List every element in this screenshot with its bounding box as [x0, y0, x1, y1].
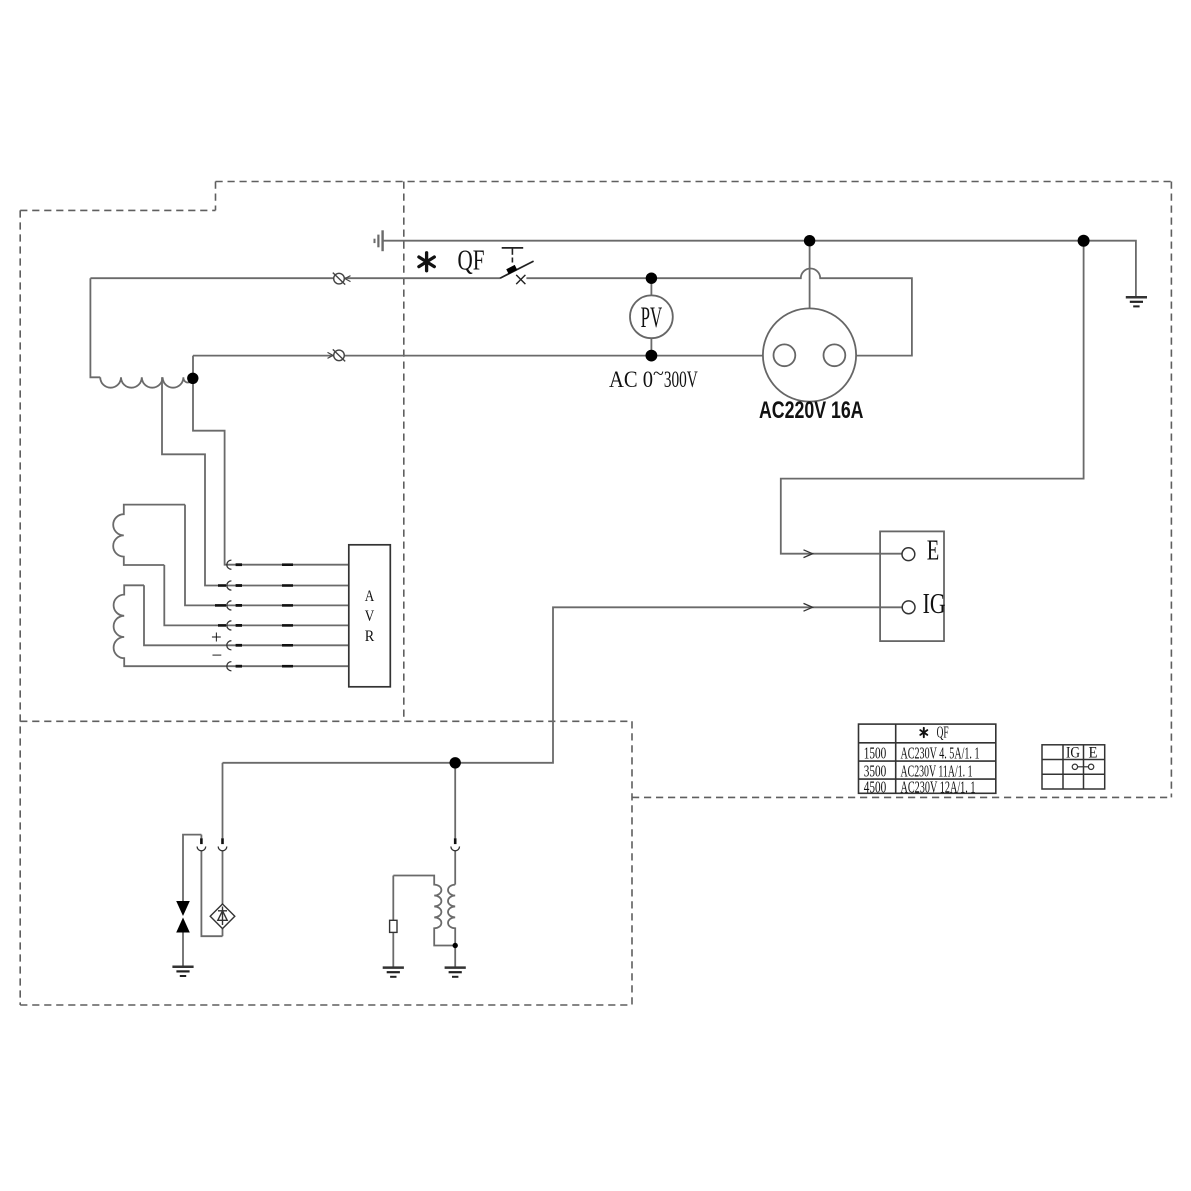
svg-text:AC230V 12A/1. 1: AC230V 12A/1. 1: [901, 778, 976, 797]
svg-text:AC220V 16A: AC220V 16A: [759, 397, 864, 424]
svg-text:−: −: [212, 646, 223, 667]
svg-text:QF: QF: [937, 723, 949, 742]
svg-text:E: E: [1089, 745, 1098, 762]
svg-text:1500: 1500: [864, 744, 887, 763]
svg-text:IG: IG: [1066, 745, 1080, 762]
svg-text:AC230V 4. 5A/1. 1: AC230V 4. 5A/1. 1: [901, 744, 980, 763]
svg-text:R: R: [365, 628, 375, 645]
svg-text:4500: 4500: [864, 778, 887, 797]
svg-text:V: V: [365, 608, 375, 625]
svg-text:E: E: [927, 536, 940, 567]
svg-text:A: A: [365, 588, 375, 605]
svg-text:IG: IG: [923, 589, 946, 620]
svg-text:QF: QF: [458, 246, 485, 277]
svg-text:PV: PV: [641, 301, 663, 334]
